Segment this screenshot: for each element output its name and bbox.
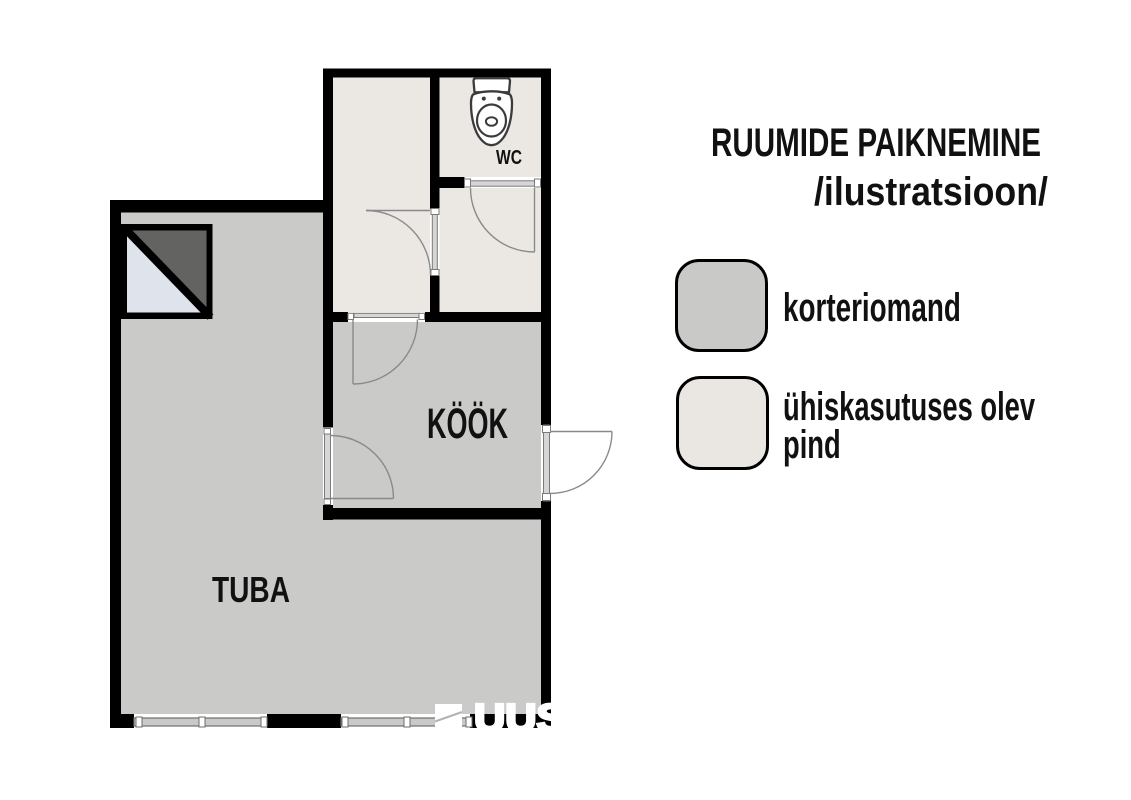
svg-text:UUS: UUS: [474, 696, 565, 740]
